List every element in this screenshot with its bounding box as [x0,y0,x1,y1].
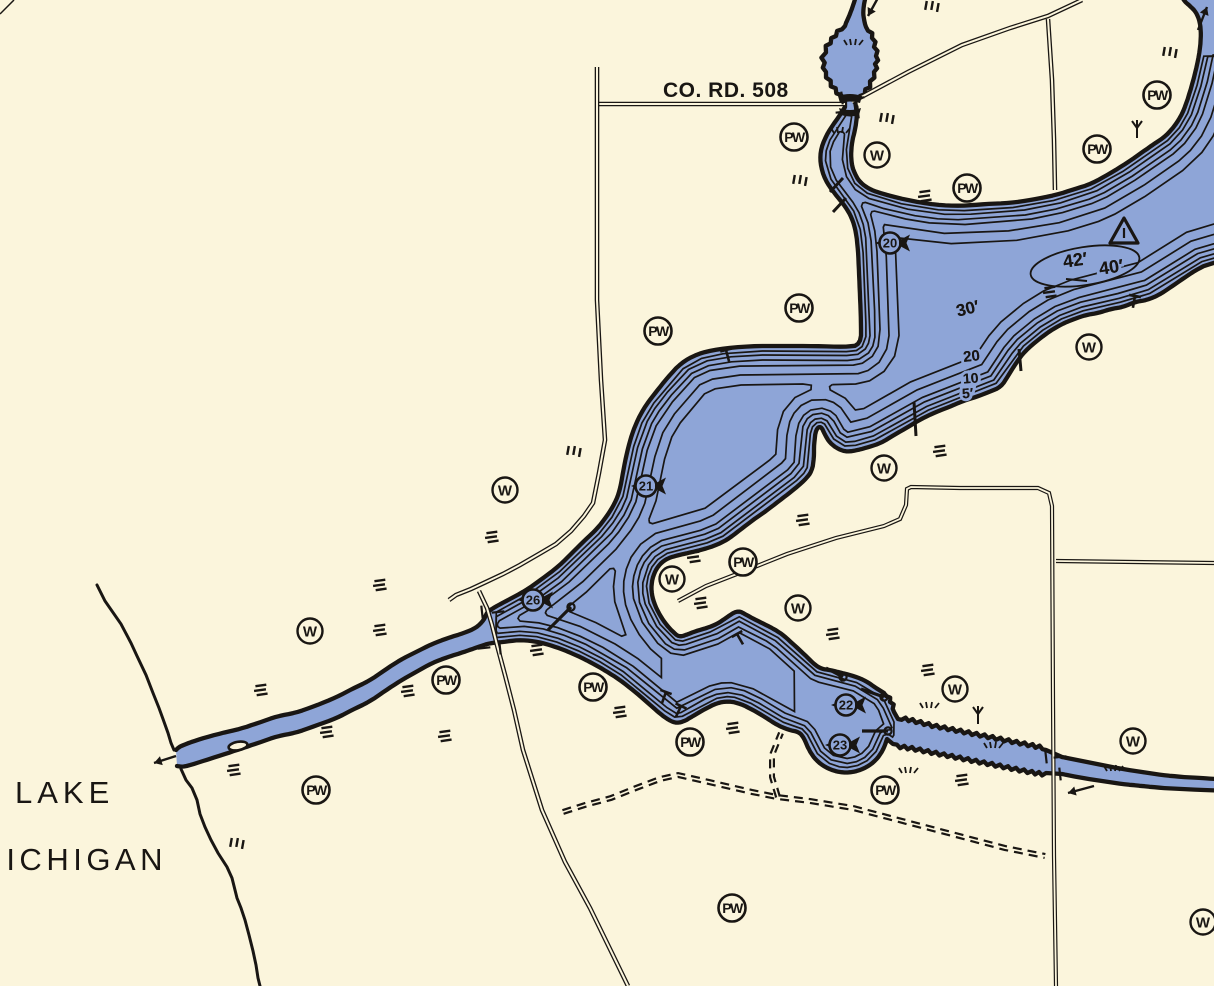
svg-text:PW: PW [733,554,755,570]
svg-text:CO. RD. 508: CO. RD. 508 [663,79,789,102]
svg-text:23: 23 [833,738,847,753]
svg-text:PW: PW [789,300,811,316]
svg-text:PW: PW [1087,141,1109,157]
svg-text:PW: PW [1147,87,1169,103]
svg-text:PW: PW [648,323,670,339]
svg-text:PW: PW [722,900,744,916]
svg-text:20: 20 [883,236,897,251]
svg-text:26: 26 [526,593,540,608]
svg-text:W: W [1196,915,1211,932]
svg-text:21: 21 [639,479,653,494]
svg-text:W: W [498,483,513,500]
svg-text:MICHIGAN: MICHIGAN [0,842,167,877]
svg-text:W: W [870,148,885,165]
svg-text:PW: PW [680,734,702,750]
svg-text:W: W [665,572,680,589]
svg-text:42′: 42′ [1062,248,1089,271]
svg-text:W: W [1082,340,1097,357]
svg-text:20: 20 [962,347,980,366]
svg-text:W: W [877,461,892,478]
svg-text:PW: PW [583,679,605,695]
svg-text:LAKE: LAKE [15,775,114,810]
svg-text:PW: PW [957,180,979,196]
svg-text:PW: PW [784,129,806,145]
svg-text:W: W [303,624,318,641]
svg-text:PW: PW [875,782,897,798]
svg-text:W: W [1126,734,1141,751]
svg-text:5′: 5′ [962,385,975,402]
svg-text:W: W [948,682,963,699]
svg-text:PW: PW [436,672,458,688]
svg-text:22: 22 [839,698,853,713]
svg-text:W: W [791,601,806,618]
svg-text:PW: PW [306,782,328,798]
